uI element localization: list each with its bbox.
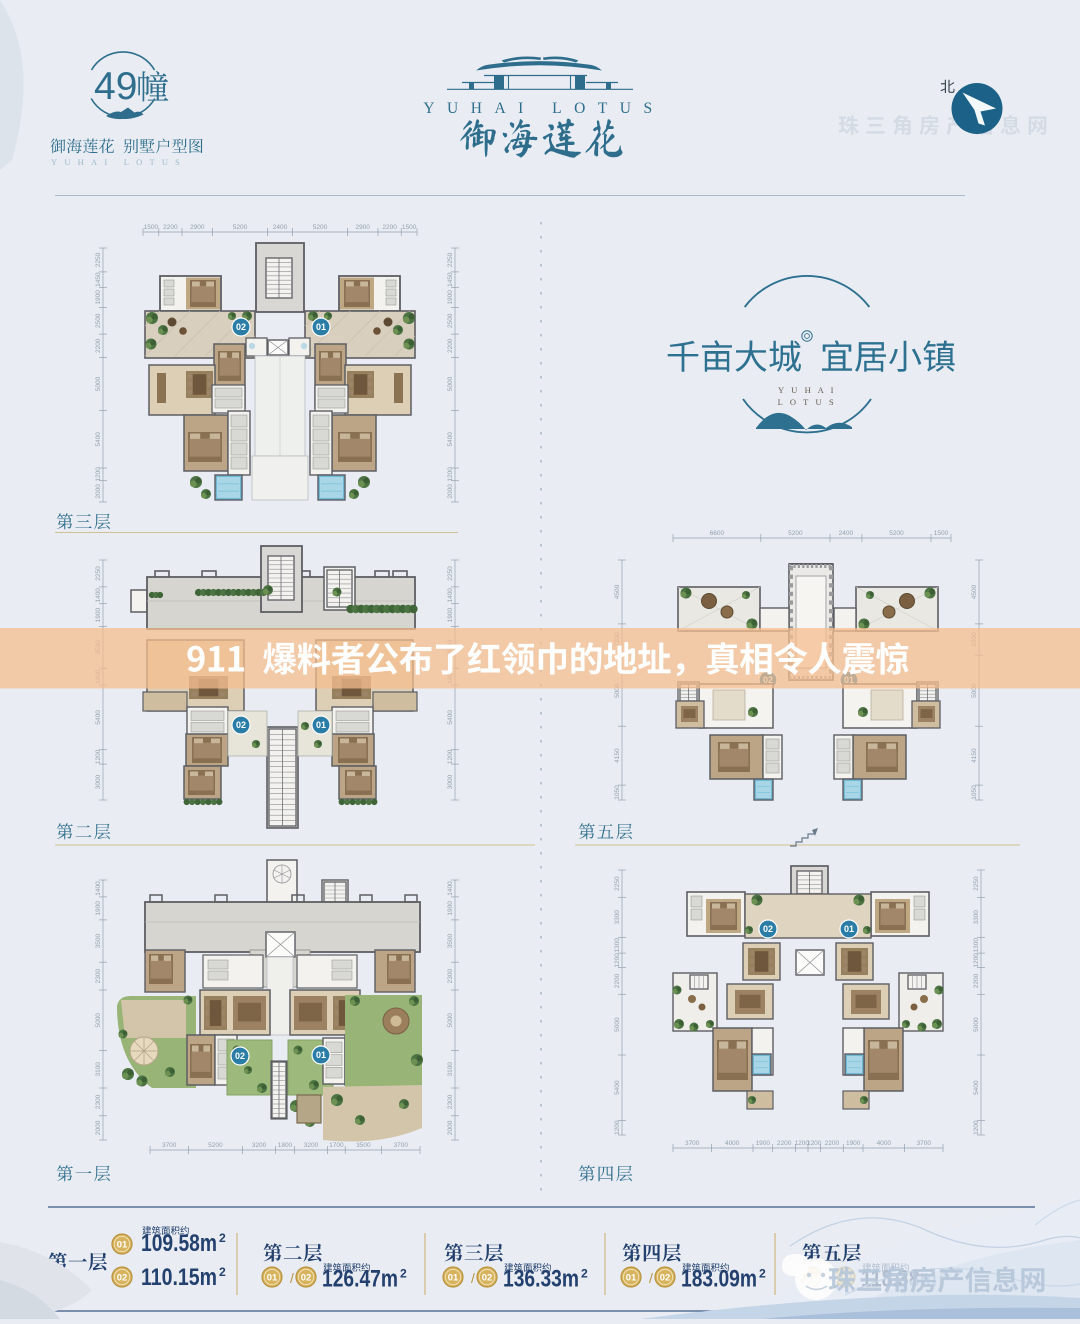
svg-text:6600: 6600 bbox=[710, 530, 725, 537]
svg-text:5200: 5200 bbox=[313, 224, 328, 231]
svg-text:5400: 5400 bbox=[447, 432, 454, 447]
svg-text:/: / bbox=[290, 1270, 294, 1286]
svg-text:Y U H A I: Y U H A I bbox=[778, 385, 836, 395]
svg-text:01: 01 bbox=[267, 1272, 278, 1283]
svg-text:1200: 1200 bbox=[614, 1120, 621, 1135]
svg-text:2000: 2000 bbox=[95, 1120, 102, 1135]
svg-text:01: 01 bbox=[626, 1272, 637, 1283]
svg-text:5000: 5000 bbox=[447, 376, 454, 391]
svg-text:1900: 1900 bbox=[447, 901, 454, 916]
svg-text:1300: 1300 bbox=[973, 938, 980, 953]
svg-text:3100: 3100 bbox=[447, 1062, 454, 1077]
svg-text:/: / bbox=[649, 1270, 653, 1286]
svg-text:136.33m: 136.33m bbox=[503, 1266, 579, 1293]
svg-text:2400: 2400 bbox=[273, 224, 288, 231]
svg-text:3300: 3300 bbox=[614, 910, 621, 925]
svg-text:3000: 3000 bbox=[447, 774, 454, 789]
svg-text:2900: 2900 bbox=[190, 224, 205, 231]
svg-text:02: 02 bbox=[117, 1272, 128, 1283]
svg-text:01: 01 bbox=[316, 1050, 326, 1060]
svg-text:5400: 5400 bbox=[95, 432, 102, 447]
svg-text:1200: 1200 bbox=[95, 467, 102, 482]
svg-text:2250: 2250 bbox=[447, 566, 454, 581]
svg-text:1900: 1900 bbox=[846, 1140, 861, 1147]
svg-text:5000: 5000 bbox=[95, 376, 102, 391]
svg-text:2250: 2250 bbox=[95, 252, 102, 267]
svg-text:2000: 2000 bbox=[447, 484, 454, 499]
svg-text:1900: 1900 bbox=[447, 607, 454, 622]
svg-text:2500: 2500 bbox=[447, 313, 454, 328]
svg-text:2250: 2250 bbox=[614, 876, 621, 891]
svg-text:01: 01 bbox=[316, 720, 326, 730]
svg-text:01: 01 bbox=[448, 1272, 459, 1283]
svg-text:1900: 1900 bbox=[95, 901, 102, 916]
svg-text:L O T U S: L O T U S bbox=[778, 397, 837, 407]
svg-text:1200: 1200 bbox=[614, 953, 621, 968]
svg-text:2300: 2300 bbox=[447, 1094, 454, 1109]
svg-text:5000: 5000 bbox=[973, 1017, 980, 1032]
svg-text:1050: 1050 bbox=[614, 785, 621, 800]
svg-text:2300: 2300 bbox=[95, 968, 102, 983]
svg-text:01: 01 bbox=[844, 924, 854, 934]
svg-text:YUHAI LOTUS: YUHAI LOTUS bbox=[423, 100, 664, 117]
svg-text:1200: 1200 bbox=[973, 953, 980, 968]
svg-text:2200: 2200 bbox=[163, 224, 178, 231]
svg-text:02: 02 bbox=[763, 924, 773, 934]
svg-text:5200: 5200 bbox=[208, 1142, 223, 1149]
svg-text:2200: 2200 bbox=[825, 1140, 840, 1147]
svg-text:3700: 3700 bbox=[394, 1142, 409, 1149]
svg-text:3700: 3700 bbox=[685, 1140, 700, 1147]
svg-text:2400: 2400 bbox=[839, 530, 854, 537]
svg-text:2200: 2200 bbox=[973, 973, 980, 988]
svg-text:1050: 1050 bbox=[971, 785, 978, 800]
svg-text:3300: 3300 bbox=[973, 910, 980, 925]
svg-text:5400: 5400 bbox=[447, 710, 454, 725]
svg-text:2250: 2250 bbox=[973, 876, 980, 891]
svg-text:3500: 3500 bbox=[447, 933, 454, 948]
svg-text:5200: 5200 bbox=[233, 224, 248, 231]
svg-text:1900: 1900 bbox=[95, 290, 102, 305]
svg-text:2200: 2200 bbox=[777, 1140, 792, 1147]
svg-text:5200: 5200 bbox=[788, 530, 803, 537]
svg-text:1900: 1900 bbox=[95, 607, 102, 622]
svg-text:2000: 2000 bbox=[95, 484, 102, 499]
svg-text:02: 02 bbox=[301, 1272, 312, 1283]
svg-text:3500: 3500 bbox=[95, 933, 102, 948]
svg-text:01: 01 bbox=[316, 322, 326, 332]
svg-text:2: 2 bbox=[219, 1265, 226, 1279]
svg-text:126.47m: 126.47m bbox=[322, 1266, 398, 1293]
svg-text:1500: 1500 bbox=[934, 530, 949, 537]
svg-text:4000: 4000 bbox=[877, 1140, 892, 1147]
svg-text:3500: 3500 bbox=[356, 1142, 371, 1149]
svg-text:5400: 5400 bbox=[95, 710, 102, 725]
svg-text:4000: 4000 bbox=[725, 1140, 740, 1147]
svg-text:5200: 5200 bbox=[889, 530, 904, 537]
svg-text:1900: 1900 bbox=[756, 1140, 771, 1147]
svg-text:110.15m: 110.15m bbox=[141, 1264, 217, 1291]
svg-text:3700: 3700 bbox=[917, 1140, 932, 1147]
svg-text:4500: 4500 bbox=[971, 584, 978, 599]
svg-text:2: 2 bbox=[759, 1267, 766, 1281]
svg-text:2300: 2300 bbox=[95, 1094, 102, 1109]
svg-text:1500: 1500 bbox=[402, 224, 417, 231]
svg-text:3100: 3100 bbox=[95, 1062, 102, 1077]
svg-text:02: 02 bbox=[235, 1051, 245, 1061]
svg-text:2250: 2250 bbox=[447, 252, 454, 267]
svg-text:YUHAI LOTUS: YUHAI LOTUS bbox=[51, 157, 187, 167]
svg-text:1200: 1200 bbox=[807, 1140, 822, 1147]
svg-text:4150: 4150 bbox=[971, 748, 978, 763]
svg-text:02: 02 bbox=[482, 1272, 493, 1283]
svg-text:5400: 5400 bbox=[614, 1080, 621, 1095]
svg-text:4500: 4500 bbox=[614, 584, 621, 599]
svg-text:1200: 1200 bbox=[447, 467, 454, 482]
svg-text:5000: 5000 bbox=[614, 1017, 621, 1032]
svg-text:2000: 2000 bbox=[447, 1120, 454, 1135]
svg-text:1400: 1400 bbox=[447, 588, 454, 603]
svg-text:01: 01 bbox=[117, 1239, 128, 1250]
svg-text:02: 02 bbox=[660, 1272, 671, 1283]
svg-text:/: / bbox=[471, 1270, 475, 1286]
svg-text:02: 02 bbox=[236, 720, 246, 730]
svg-text:1500: 1500 bbox=[144, 224, 159, 231]
svg-text:02: 02 bbox=[236, 322, 246, 332]
svg-text:1400: 1400 bbox=[447, 881, 454, 896]
svg-text:2200: 2200 bbox=[95, 338, 102, 353]
svg-text:3700: 3700 bbox=[162, 1142, 177, 1149]
svg-text:3000: 3000 bbox=[95, 774, 102, 789]
svg-text:2200: 2200 bbox=[614, 973, 621, 988]
svg-text:1300: 1300 bbox=[614, 938, 621, 953]
svg-text:1200: 1200 bbox=[95, 749, 102, 764]
svg-text:1200: 1200 bbox=[973, 1120, 980, 1135]
svg-text:2: 2 bbox=[581, 1267, 588, 1281]
svg-text:2: 2 bbox=[219, 1231, 226, 1245]
svg-text:1800: 1800 bbox=[278, 1142, 293, 1149]
svg-text:2: 2 bbox=[400, 1267, 407, 1281]
svg-text:109.58m: 109.58m bbox=[141, 1230, 217, 1257]
svg-text:1450: 1450 bbox=[95, 272, 102, 287]
svg-text:1200: 1200 bbox=[447, 749, 454, 764]
svg-text:1900: 1900 bbox=[447, 290, 454, 305]
svg-text:2200: 2200 bbox=[447, 338, 454, 353]
svg-text:1400: 1400 bbox=[95, 881, 102, 896]
svg-text:3200: 3200 bbox=[252, 1142, 267, 1149]
svg-text:5000: 5000 bbox=[447, 1013, 454, 1028]
svg-text:1400: 1400 bbox=[95, 588, 102, 603]
svg-text:4150: 4150 bbox=[614, 748, 621, 763]
svg-text:2200: 2200 bbox=[382, 224, 397, 231]
svg-text:5400: 5400 bbox=[973, 1080, 980, 1095]
svg-text:2250: 2250 bbox=[95, 566, 102, 581]
svg-text:1700: 1700 bbox=[329, 1142, 344, 1149]
svg-text:1450: 1450 bbox=[447, 272, 454, 287]
svg-text:5000: 5000 bbox=[95, 1013, 102, 1028]
svg-text:2300: 2300 bbox=[447, 968, 454, 983]
svg-text:2900: 2900 bbox=[355, 224, 370, 231]
svg-text:3200: 3200 bbox=[304, 1142, 319, 1149]
svg-text:183.09m: 183.09m bbox=[681, 1266, 757, 1293]
svg-text:2500: 2500 bbox=[95, 313, 102, 328]
svg-text:49: 49 bbox=[94, 65, 137, 108]
